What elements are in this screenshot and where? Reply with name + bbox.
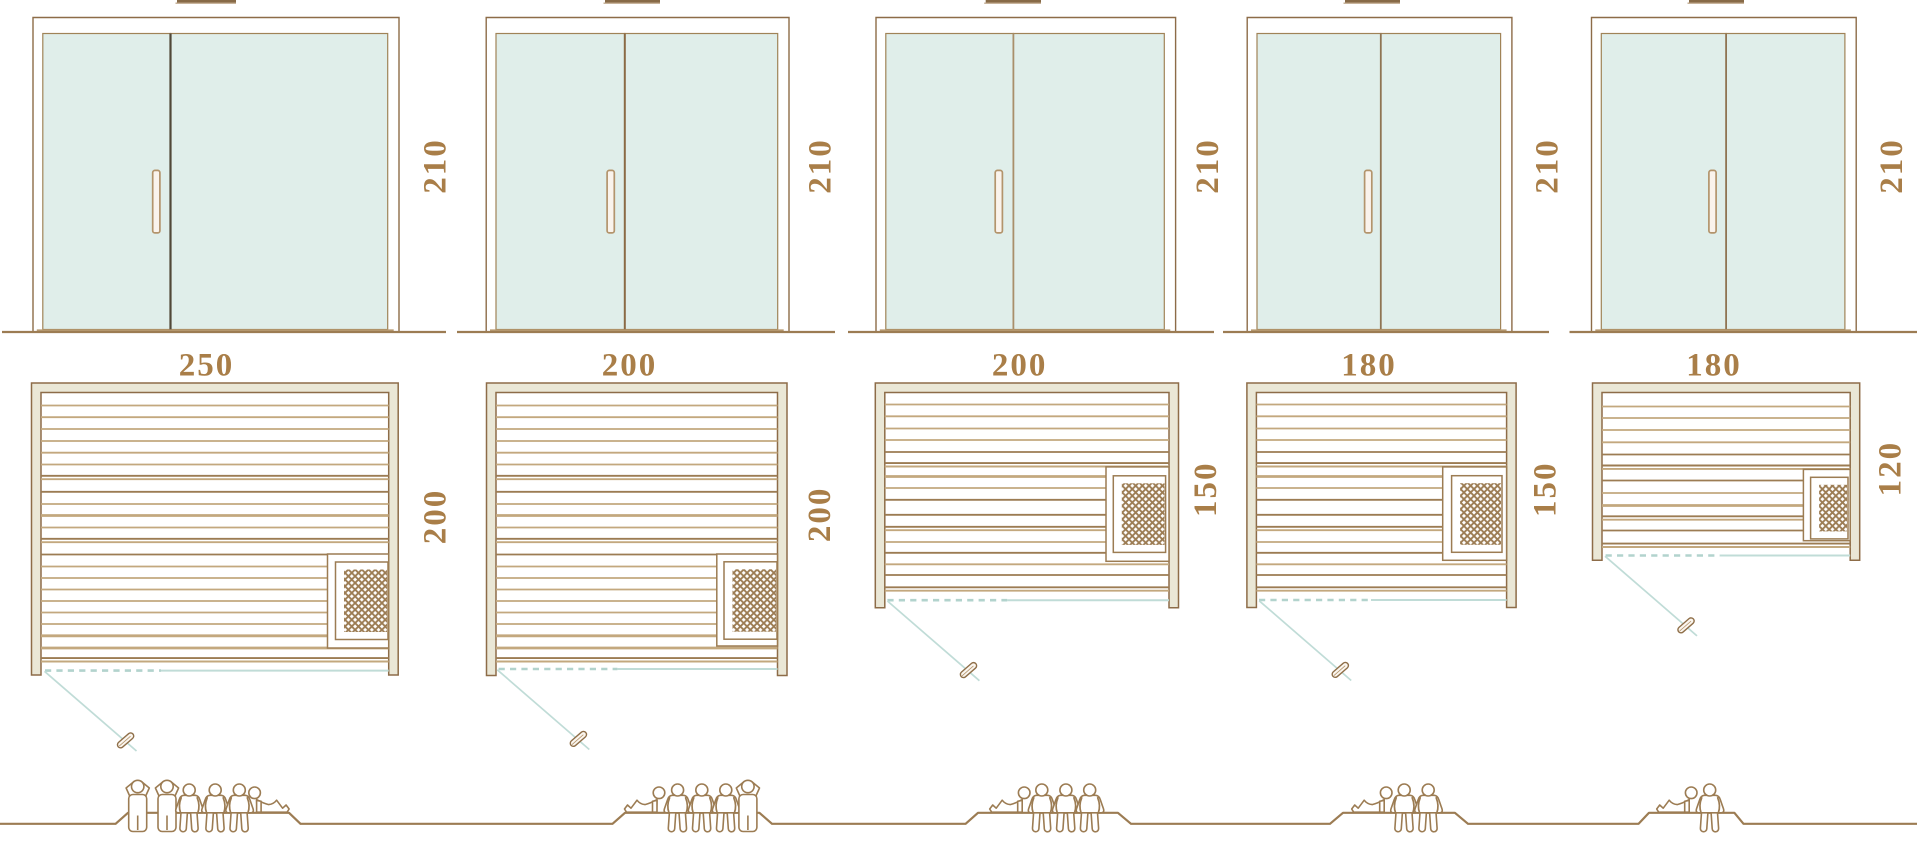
svg-text:200: 200 bbox=[602, 348, 658, 384]
svg-text:210: 210 bbox=[418, 138, 454, 194]
svg-text:200: 200 bbox=[802, 487, 838, 543]
svg-text:150: 150 bbox=[1188, 462, 1224, 518]
svg-text:210: 210 bbox=[803, 138, 839, 194]
svg-text:180: 180 bbox=[1686, 348, 1742, 384]
svg-text:200: 200 bbox=[418, 489, 454, 545]
svg-text:210: 210 bbox=[1530, 138, 1566, 194]
svg-text:200: 200 bbox=[992, 348, 1048, 384]
svg-text:210: 210 bbox=[1190, 138, 1226, 194]
svg-text:210: 210 bbox=[1874, 138, 1910, 194]
svg-text:120: 120 bbox=[1873, 441, 1909, 497]
svg-text:250: 250 bbox=[179, 348, 235, 384]
svg-text:150: 150 bbox=[1527, 461, 1563, 517]
svg-text:180: 180 bbox=[1341, 348, 1397, 384]
